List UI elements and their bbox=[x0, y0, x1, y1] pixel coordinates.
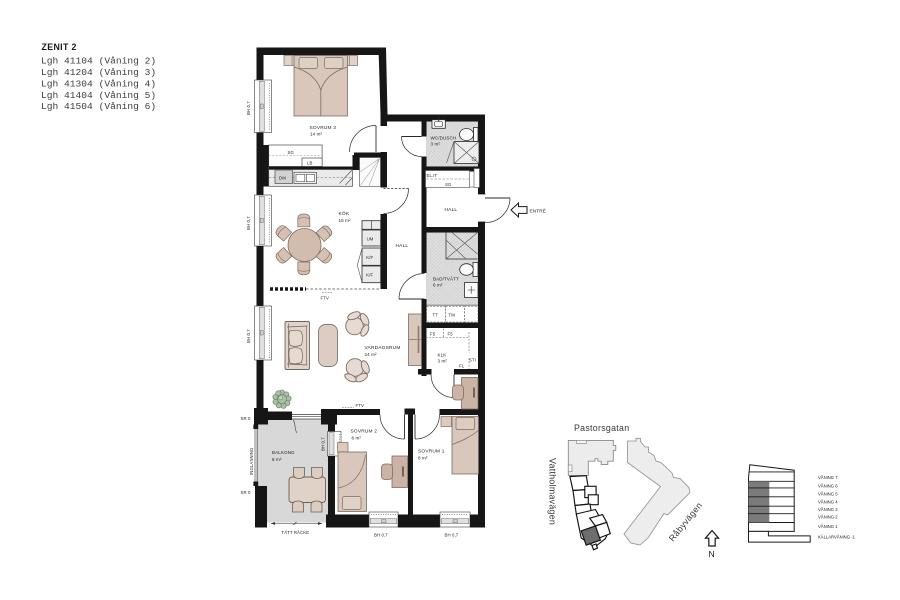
svg-text:KLK: KLK bbox=[438, 353, 447, 358]
svg-text:KÖK: KÖK bbox=[339, 210, 350, 217]
svg-text:STI: STI bbox=[469, 358, 476, 363]
svg-text:BH 0,7: BH 0,7 bbox=[246, 216, 251, 230]
svg-text:SOVRUM 3: SOVRUM 3 bbox=[310, 125, 337, 131]
svg-text:Lgh 41104 (Våning 2): Lgh 41104 (Våning 2) bbox=[41, 56, 156, 67]
svg-text:VÅNING 5: VÅNING 5 bbox=[818, 492, 838, 497]
svg-text:SR 0: SR 0 bbox=[241, 416, 251, 421]
svg-text:VÅNING 7: VÅNING 7 bbox=[818, 475, 838, 480]
svg-text:3 m²: 3 m² bbox=[438, 359, 448, 364]
svg-text:6 m²: 6 m² bbox=[433, 283, 443, 288]
svg-text:VÅNING 3: VÅNING 3 bbox=[818, 507, 838, 512]
svg-text:HALL: HALL bbox=[445, 207, 458, 213]
svg-text:FTV: FTV bbox=[321, 296, 329, 301]
svg-text:BH 0,7: BH 0,7 bbox=[321, 437, 326, 451]
svg-text:VÅNING 4: VÅNING 4 bbox=[818, 499, 838, 504]
svg-text:SR 0: SR 0 bbox=[241, 490, 251, 495]
svg-text:3 m²: 3 m² bbox=[431, 142, 441, 147]
svg-text:TT: TT bbox=[433, 313, 439, 318]
svg-text:SOVRUM 1: SOVRUM 1 bbox=[418, 449, 445, 455]
svg-text:LB: LB bbox=[307, 161, 312, 166]
svg-text:K/F: K/F bbox=[366, 255, 373, 260]
svg-text:Vattholmavägen: Vattholmavägen bbox=[548, 458, 558, 525]
svg-text:BH 0,7: BH 0,7 bbox=[246, 329, 251, 343]
svg-text:Lgh 41404 (Våning 5): Lgh 41404 (Våning 5) bbox=[41, 90, 156, 101]
svg-text:BALKONG: BALKONG bbox=[272, 450, 295, 455]
svg-text:8 m²: 8 m² bbox=[418, 456, 428, 461]
svg-text:INGLASNING: INGLASNING bbox=[249, 447, 254, 475]
svg-text:TÄTT RÄCKE: TÄTT RÄCKE bbox=[282, 530, 310, 535]
svg-text:8 m²: 8 m² bbox=[352, 436, 362, 441]
svg-text:K/F: K/F bbox=[366, 273, 373, 278]
svg-text:FL: FL bbox=[459, 364, 465, 369]
svg-text:SG: SG bbox=[288, 150, 295, 155]
svg-text:ZENIT 2: ZENIT 2 bbox=[42, 42, 77, 52]
svg-text:KÄLLARVÅNING -1: KÄLLARVÅNING -1 bbox=[818, 534, 856, 539]
svg-text:VARDAGSRUM: VARDAGSRUM bbox=[365, 345, 401, 351]
svg-text:Lgh 41504 (Våning 6): Lgh 41504 (Våning 6) bbox=[41, 101, 156, 112]
svg-text:TM: TM bbox=[449, 313, 456, 318]
svg-text:15 m²: 15 m² bbox=[339, 218, 351, 223]
svg-text:FTV: FTV bbox=[356, 403, 364, 408]
svg-text:SOVRUM 2: SOVRUM 2 bbox=[351, 429, 378, 435]
svg-text:Lgh 41304 (Våning 4): Lgh 41304 (Våning 4) bbox=[41, 78, 156, 89]
svg-text:HALL: HALL bbox=[396, 243, 409, 249]
svg-text:8 m²: 8 m² bbox=[272, 457, 282, 462]
svg-text:BH 0,7: BH 0,7 bbox=[374, 533, 388, 538]
svg-text:SG: SG bbox=[445, 182, 452, 187]
svg-text:DM: DM bbox=[279, 176, 286, 181]
svg-text:F5: F5 bbox=[448, 332, 454, 337]
svg-text:BH 0,7: BH 0,7 bbox=[246, 101, 251, 115]
svg-text:UM: UM bbox=[367, 237, 374, 242]
svg-text:Pastorsgatan: Pastorsgatan bbox=[574, 423, 629, 433]
svg-text:VÅNING 1: VÅNING 1 bbox=[818, 524, 838, 529]
svg-text:WC/DUSCH: WC/DUSCH bbox=[431, 136, 457, 141]
svg-text:ENTRÉ: ENTRÉ bbox=[530, 208, 547, 214]
svg-text:BAD/TVÄTT: BAD/TVÄTT bbox=[433, 276, 459, 282]
svg-text:VÅNING 2: VÅNING 2 bbox=[818, 514, 838, 519]
svg-text:14 m²: 14 m² bbox=[310, 132, 322, 137]
svg-text:N: N bbox=[709, 549, 715, 559]
svg-text:F5: F5 bbox=[430, 332, 436, 337]
svg-text:24 m²: 24 m² bbox=[365, 352, 377, 357]
svg-text:Lgh 41204 (Våning 3): Lgh 41204 (Våning 3) bbox=[41, 67, 156, 78]
svg-text:VÅNING 6: VÅNING 6 bbox=[818, 483, 838, 488]
svg-text:BH 0,7: BH 0,7 bbox=[445, 533, 459, 538]
svg-text:EL.IT: EL.IT bbox=[427, 173, 438, 178]
